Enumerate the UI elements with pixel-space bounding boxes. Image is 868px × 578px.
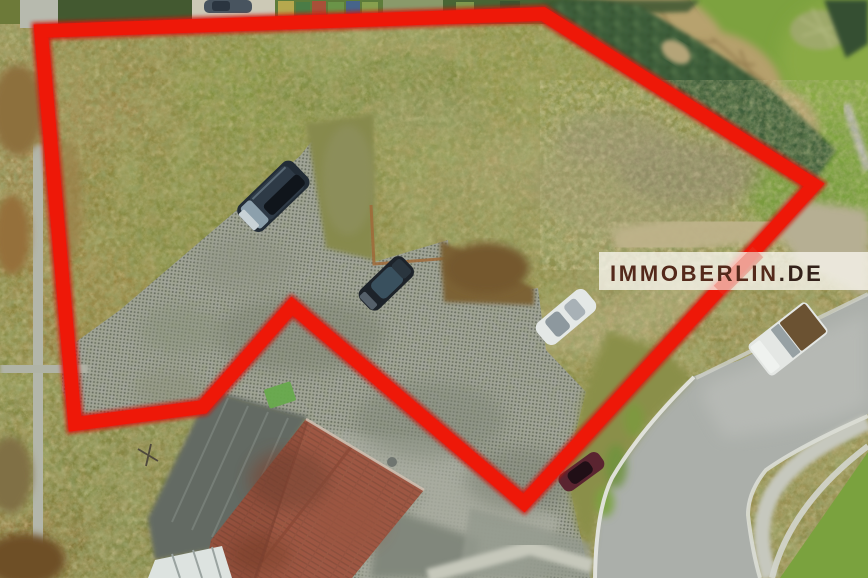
svg-text:IMMOBERLIN.DE: IMMOBERLIN.DE bbox=[610, 261, 824, 286]
